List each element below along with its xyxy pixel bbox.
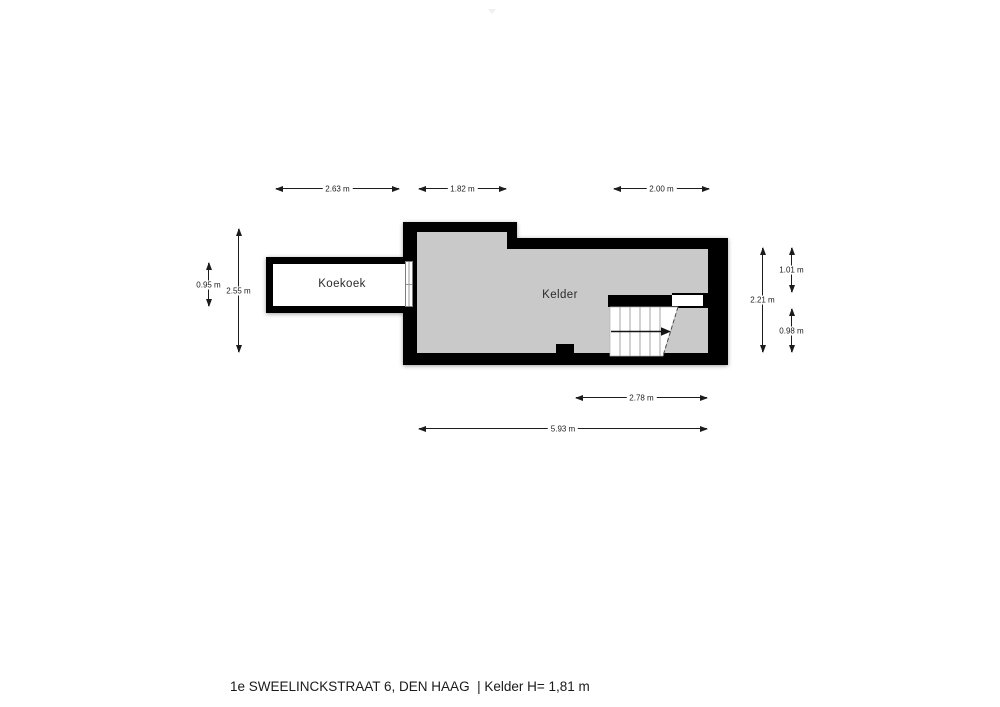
arrow-left-icon (418, 186, 426, 192)
dimension-left-total-height: 2.55 m (234, 228, 243, 353)
door-jamb (703, 295, 708, 306)
dimension-label: 1.82 m (447, 184, 477, 193)
arrow-left-icon (613, 186, 621, 192)
arrow-up-icon (236, 228, 242, 236)
bottom-wall-stub (556, 344, 574, 365)
dimension-right-lower-height: 0.98 m (787, 308, 796, 353)
dimension-label: 0.98 m (776, 326, 806, 335)
dimension-top-koekoek-width: 2.63 m (275, 184, 400, 193)
arrow-right-icon (499, 186, 507, 192)
room-label-kelder: Kelder (542, 289, 578, 301)
arrow-up-icon (206, 262, 212, 270)
dimension-bottom-stair-section: 2.78 m (575, 393, 708, 402)
dimension-label: 1.01 m (776, 266, 806, 275)
arrow-down-icon (236, 345, 242, 353)
arrow-right-icon (702, 186, 710, 192)
dimension-label: 2.78 m (626, 393, 656, 402)
arrow-down-icon (760, 345, 766, 353)
room-label-koekoek: Koekoek (318, 278, 366, 290)
arrow-left-icon (418, 426, 426, 432)
dimension-right-total-height: 2.21 m (758, 247, 767, 353)
dimension-top-kelder-right-width: 2.00 m (613, 184, 710, 193)
dimension-right-upper-height: 1.01 m (787, 247, 796, 293)
arrow-up-icon (789, 308, 795, 316)
dimension-top-kelder-left-width: 1.82 m (418, 184, 507, 193)
dimension-left-koekoek-height: 0.95 m (204, 262, 213, 307)
arrow-left-icon (575, 395, 583, 401)
dimension-label: 0.95 m (193, 280, 223, 289)
arrow-down-icon (789, 285, 795, 293)
window-mullion-horizontal (406, 284, 412, 285)
dimension-label: 2.55 m (223, 286, 253, 295)
dimension-label: 2.63 m (322, 184, 352, 193)
dimension-label: 2.00 m (646, 184, 676, 193)
arrow-right-icon (392, 186, 400, 192)
kelder-floor-left (417, 232, 507, 353)
dimension-label: 5.93 m (548, 424, 578, 433)
stairs-symbol (606, 304, 686, 359)
arrow-left-icon (275, 186, 283, 192)
dimension-bottom-total-width: 5.93 m (418, 424, 708, 433)
floorplan-footer-title: 1e SWEELINCKSTRAAT 6, DEN HAAG | Kelder … (230, 679, 590, 694)
floorplan-canvas: Koekoek Kelder 2.63 m 1.82 m 2.00 m 2.78… (0, 0, 1000, 707)
arrow-down-icon (206, 299, 212, 307)
arrow-up-icon (760, 247, 766, 255)
arrow-right-icon (700, 426, 708, 432)
floorplan: Koekoek Kelder (0, 0, 1000, 707)
arrow-down-icon (789, 345, 795, 353)
dimension-label: 2.21 m (747, 296, 777, 305)
window-icon (405, 261, 413, 307)
arrow-up-icon (789, 247, 795, 255)
arrow-right-icon (700, 395, 708, 401)
